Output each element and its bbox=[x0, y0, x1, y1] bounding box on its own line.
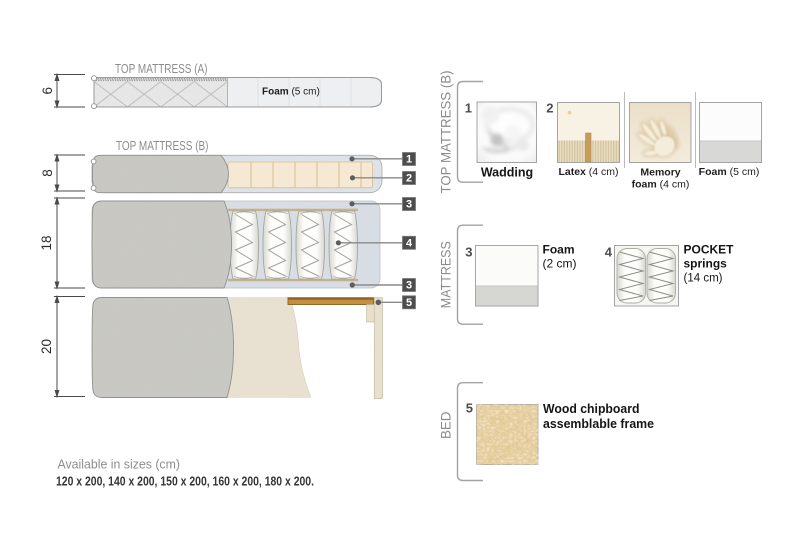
svg-text:foam (4 cm): foam (4 cm) bbox=[632, 179, 690, 191]
svg-text:3: 3 bbox=[406, 280, 412, 292]
svg-text:4: 4 bbox=[605, 244, 613, 259]
svg-text:Memory: Memory bbox=[640, 167, 680, 179]
svg-text:5: 5 bbox=[406, 297, 412, 309]
svg-text:1: 1 bbox=[406, 154, 412, 166]
svg-text:TOP MATTRESS (A): TOP MATTRESS (A) bbox=[115, 61, 208, 76]
svg-text:Foam (5 cm): Foam (5 cm) bbox=[262, 87, 320, 98]
svg-text:Latex (4 cm): Latex (4 cm) bbox=[558, 166, 618, 178]
svg-text:MATTRESS: MATTRESS bbox=[439, 241, 454, 308]
svg-text:4: 4 bbox=[406, 238, 413, 250]
svg-text:TOP MATTRESS (B): TOP MATTRESS (B) bbox=[439, 71, 454, 194]
svg-text:POCKET: POCKET bbox=[684, 242, 735, 256]
svg-text:120 x 200, 140 x 200, 150 x 20: 120 x 200, 140 x 200, 150 x 200, 160 x 2… bbox=[56, 474, 314, 488]
svg-text:2: 2 bbox=[546, 101, 553, 116]
svg-text:Available in sizes (cm): Available in sizes (cm) bbox=[58, 456, 181, 471]
svg-text:(14 cm): (14 cm) bbox=[684, 272, 723, 284]
svg-text:TOP MATTRESS (B): TOP MATTRESS (B) bbox=[116, 138, 209, 153]
svg-text:3: 3 bbox=[465, 244, 472, 259]
svg-text:6: 6 bbox=[40, 87, 55, 95]
svg-text:8: 8 bbox=[40, 169, 55, 177]
svg-text:(2 cm): (2 cm) bbox=[543, 256, 577, 270]
svg-text:assemblable frame: assemblable frame bbox=[543, 417, 654, 431]
svg-text:Foam (5 cm): Foam (5 cm) bbox=[699, 166, 760, 178]
svg-text:3: 3 bbox=[406, 199, 412, 211]
svg-text:springs: springs bbox=[684, 256, 728, 270]
svg-text:20: 20 bbox=[39, 339, 54, 354]
svg-text:BED: BED bbox=[439, 411, 454, 439]
svg-text:Wood chipboard: Wood chipboard bbox=[543, 402, 640, 416]
svg-text:1: 1 bbox=[465, 101, 472, 116]
svg-text:5: 5 bbox=[466, 401, 473, 416]
svg-text:Foam: Foam bbox=[543, 242, 575, 256]
svg-text:Wadding: Wadding bbox=[481, 165, 533, 179]
svg-text:18: 18 bbox=[39, 235, 54, 250]
svg-text:2: 2 bbox=[406, 173, 412, 185]
